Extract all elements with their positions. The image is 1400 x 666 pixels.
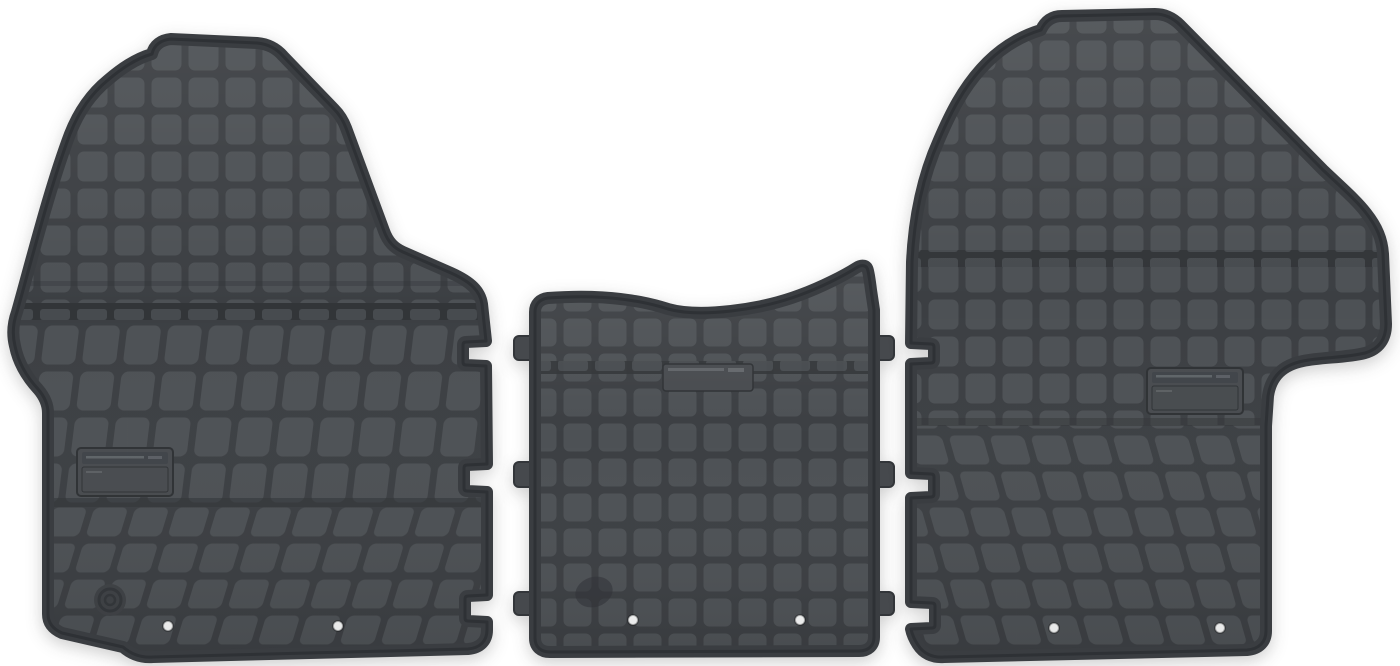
floor-mat-set-image — [0, 0, 1400, 666]
product-photo — [0, 0, 1400, 666]
tunnel-mat — [514, 258, 894, 660]
